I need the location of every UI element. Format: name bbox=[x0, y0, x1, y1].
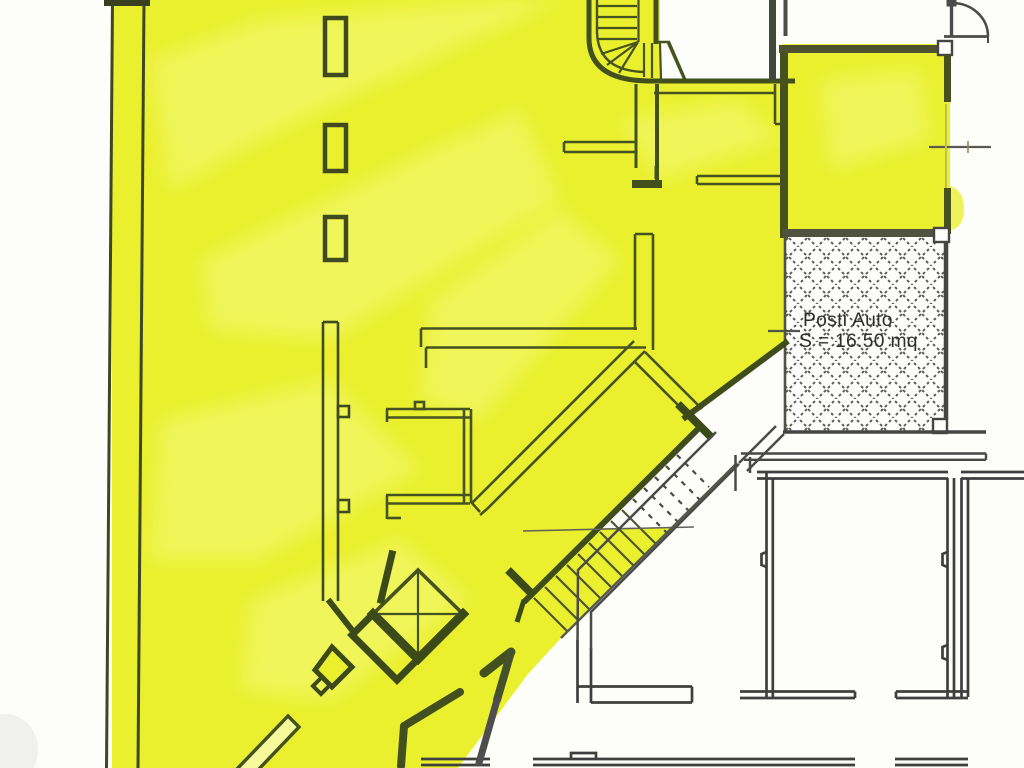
svg-text:Posti Auto: Posti Auto bbox=[803, 310, 893, 331]
svg-text:S = 16.50 mq: S = 16.50 mq bbox=[799, 331, 918, 352]
